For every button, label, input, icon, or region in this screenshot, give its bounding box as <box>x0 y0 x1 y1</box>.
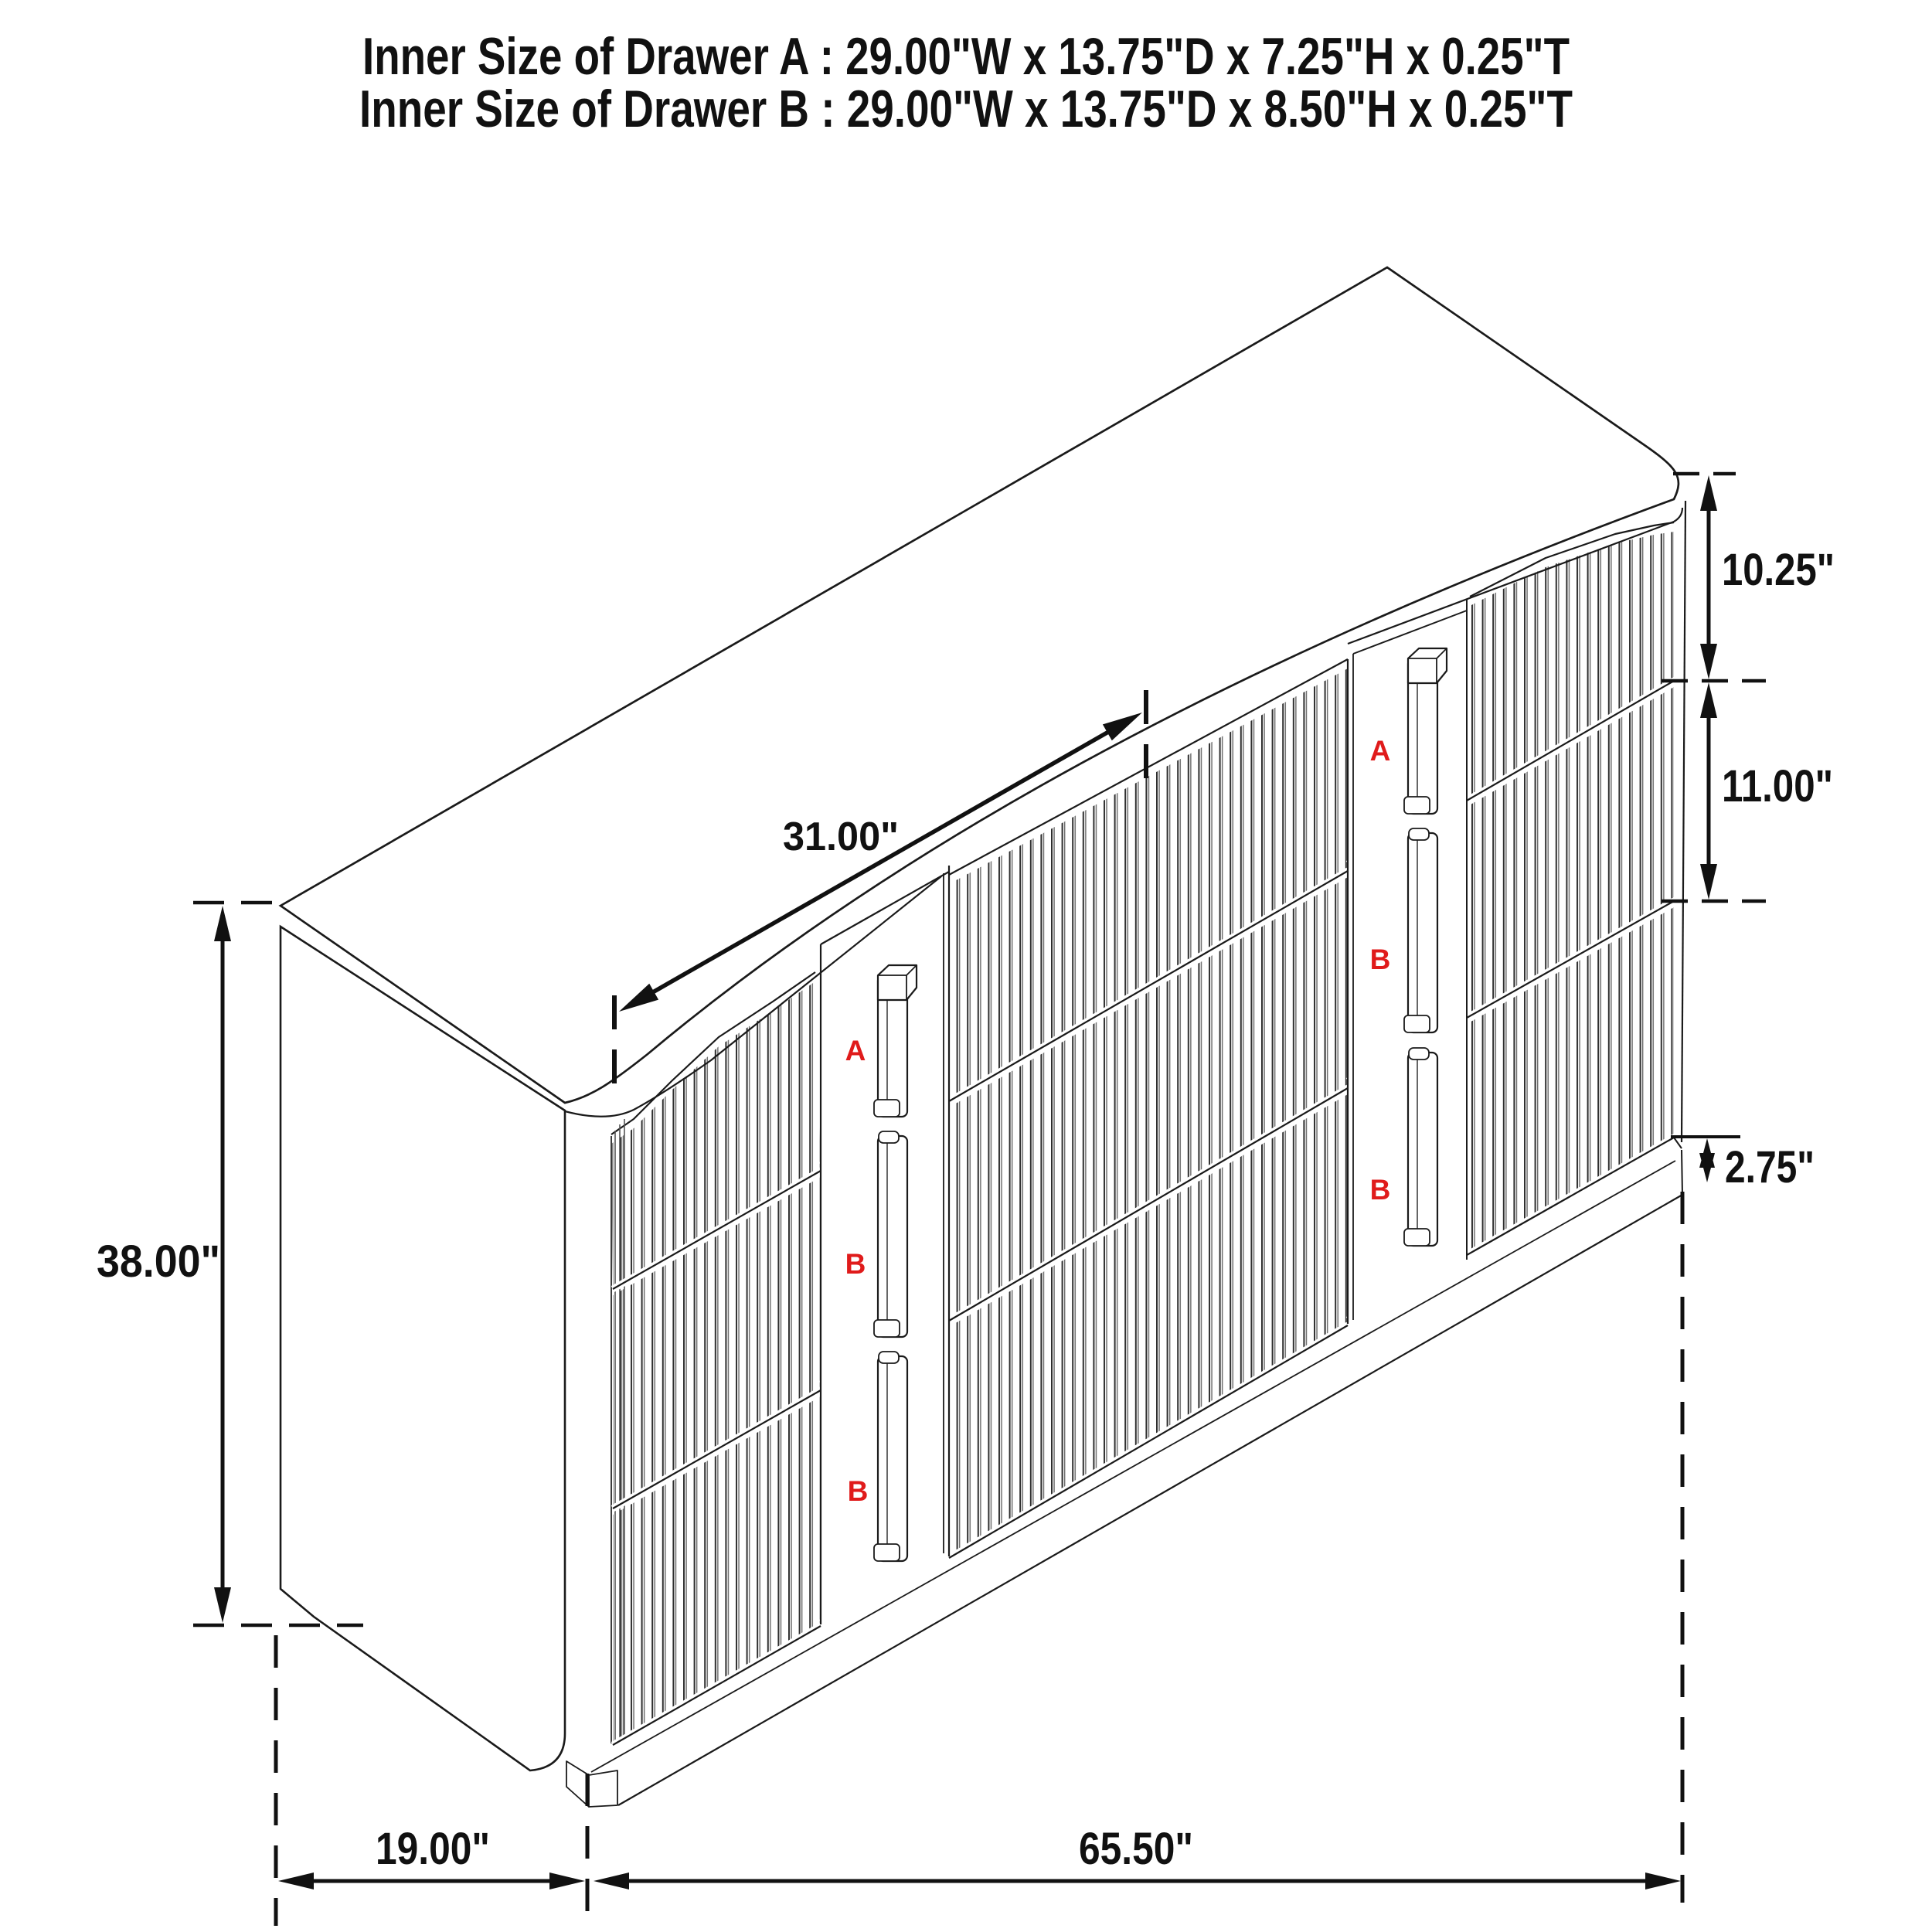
svg-text:B: B <box>848 1475 869 1507</box>
svg-text:10.25": 10.25" <box>1722 545 1835 595</box>
svg-text:31.00": 31.00" <box>783 815 899 859</box>
svg-text:2.75": 2.75" <box>1725 1142 1815 1192</box>
svg-text:65.50": 65.50" <box>1079 1824 1193 1874</box>
svg-text:38.00": 38.00" <box>97 1236 220 1287</box>
svg-text:B: B <box>1370 944 1391 975</box>
svg-text:Inner Size of Drawer A : 29.00: Inner Size of Drawer A : 29.00"W x 13.75… <box>362 27 1570 86</box>
svg-text:11.00": 11.00" <box>1722 761 1833 811</box>
svg-text:B: B <box>1370 1174 1391 1206</box>
svg-text:19.00": 19.00" <box>376 1824 490 1874</box>
svg-text:Inner Size of Drawer B : 29.00: Inner Size of Drawer B : 29.00"W x 13.75… <box>359 80 1573 138</box>
svg-text:B: B <box>845 1248 866 1280</box>
svg-text:A: A <box>845 1035 866 1066</box>
svg-text:A: A <box>1370 735 1391 767</box>
